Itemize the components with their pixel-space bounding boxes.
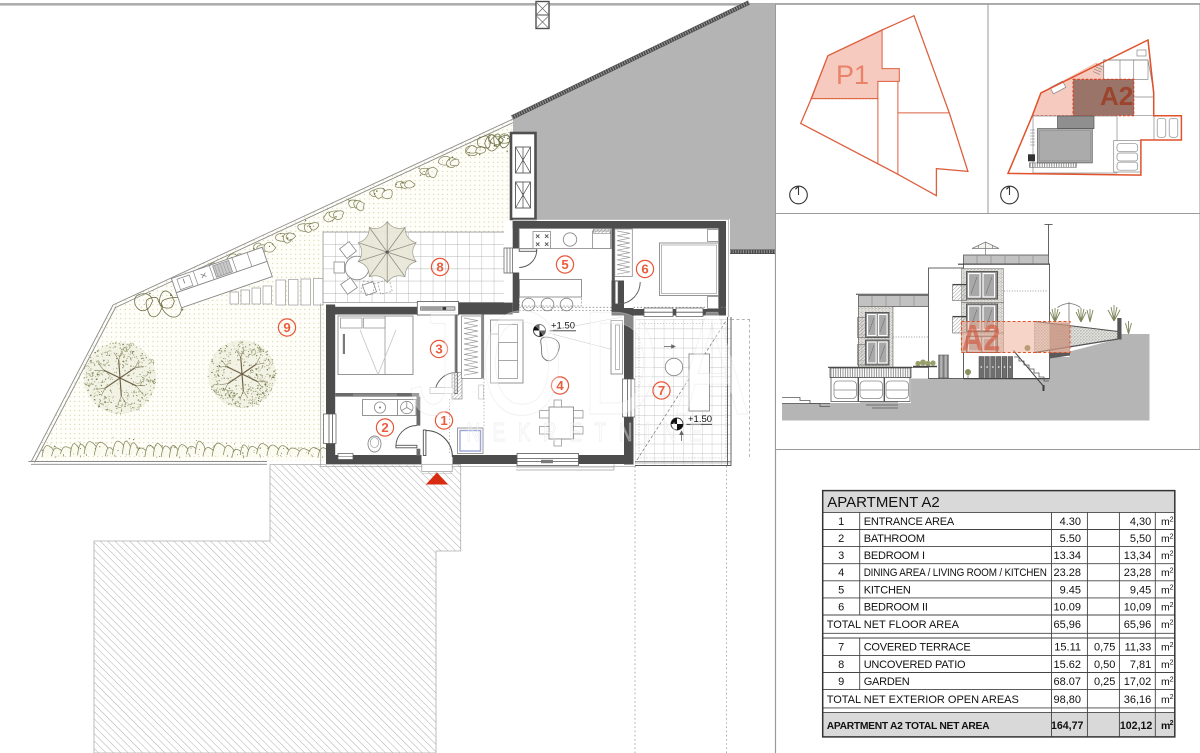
svg-text:5,50: 5,50 [1130, 533, 1151, 545]
svg-text:8: 8 [838, 659, 844, 671]
svg-text:NEKRETNINE: NEKRETNINE [466, 417, 714, 447]
svg-text:10.09: 10.09 [1053, 602, 1081, 614]
svg-text:9.45: 9.45 [1060, 584, 1081, 596]
svg-text:102,12: 102,12 [1120, 720, 1153, 732]
svg-text:23.28: 23.28 [1053, 567, 1081, 579]
svg-text:APARTMENT A2 TOTAL NET AREA: APARTMENT A2 TOTAL NET AREA [827, 721, 990, 732]
svg-text:BEDROOM II: BEDROOM II [864, 602, 928, 614]
svg-text:2: 2 [1170, 568, 1174, 575]
svg-text:15.62: 15.62 [1053, 659, 1081, 671]
svg-text:2: 2 [1170, 516, 1174, 523]
svg-text:2: 2 [838, 533, 844, 545]
svg-text:UNCOVERED PATIO: UNCOVERED PATIO [864, 659, 966, 671]
svg-text:17,02: 17,02 [1124, 676, 1152, 688]
svg-text:2: 2 [1170, 602, 1174, 609]
svg-text:3: 3 [838, 550, 844, 562]
svg-text:36,16: 36,16 [1124, 694, 1152, 706]
svg-text:65,96: 65,96 [1053, 619, 1081, 631]
svg-text:2: 2 [1170, 676, 1174, 683]
svg-text:9,45: 9,45 [1130, 584, 1151, 596]
svg-text:9: 9 [283, 320, 290, 335]
svg-text:6: 6 [641, 262, 648, 277]
svg-text:2: 2 [1170, 620, 1174, 627]
svg-text:2: 2 [1170, 694, 1174, 701]
svg-text:0,75: 0,75 [1094, 642, 1115, 654]
svg-text:APARTMENT A2: APARTMENT A2 [827, 494, 940, 511]
svg-text:13.34: 13.34 [1053, 550, 1081, 562]
svg-text:2: 2 [1170, 642, 1174, 649]
svg-text:GARDEN: GARDEN [864, 676, 910, 688]
svg-text:6: 6 [838, 602, 844, 614]
svg-text:4,30: 4,30 [1130, 516, 1151, 528]
svg-text:164,77: 164,77 [1051, 720, 1084, 732]
svg-text:P1: P1 [836, 60, 869, 90]
svg-text:0,50: 0,50 [1094, 659, 1115, 671]
svg-text:23,28: 23,28 [1124, 567, 1152, 579]
svg-text:TOTAL NET EXTERIOR OPEN AREAS: TOTAL NET EXTERIOR OPEN AREAS [827, 694, 1019, 706]
svg-text:5.50: 5.50 [1060, 533, 1081, 545]
svg-text:8: 8 [436, 260, 443, 275]
svg-text:65,96: 65,96 [1124, 619, 1152, 631]
svg-text:5: 5 [561, 257, 568, 272]
svg-text:COVERED TERRACE: COVERED TERRACE [864, 642, 971, 654]
svg-text:5: 5 [838, 584, 844, 596]
svg-text:ENTRANCE AREA: ENTRANCE AREA [864, 516, 955, 528]
svg-text:2: 2 [381, 420, 388, 435]
svg-text:1: 1 [838, 516, 844, 528]
svg-text:9: 9 [838, 676, 844, 688]
svg-text:BATHROOM: BATHROOM [864, 533, 925, 545]
svg-text:BEDROOM I: BEDROOM I [864, 550, 925, 562]
svg-text:10,09: 10,09 [1124, 602, 1152, 614]
svg-text:2: 2 [1170, 659, 1174, 666]
svg-text:0,25: 0,25 [1094, 676, 1115, 688]
svg-text:68.07: 68.07 [1053, 676, 1081, 688]
svg-text:KITCHEN: KITCHEN [864, 584, 911, 596]
svg-text:4.30: 4.30 [1060, 516, 1081, 528]
svg-text:2: 2 [1170, 551, 1174, 558]
svg-text:TOTAL NET FLOOR AREA: TOTAL NET FLOOR AREA [827, 619, 960, 631]
svg-text:A2: A2 [1100, 81, 1133, 111]
svg-text:A2: A2 [962, 318, 1001, 359]
svg-text:4: 4 [838, 567, 844, 579]
svg-text:2: 2 [1170, 585, 1174, 592]
svg-text:DINING AREA / LIVING ROOM / KI: DINING AREA / LIVING ROOM / KITCHEN [864, 567, 1047, 579]
svg-text:15.11: 15.11 [1054, 642, 1081, 654]
svg-text:2: 2 [1170, 533, 1174, 540]
svg-text:13,34: 13,34 [1124, 550, 1152, 562]
svg-text:2: 2 [1170, 720, 1174, 727]
svg-text:7: 7 [838, 642, 844, 654]
svg-text:7,81: 7,81 [1130, 659, 1151, 671]
svg-text:98,80: 98,80 [1053, 694, 1081, 706]
svg-text:11,33: 11,33 [1125, 642, 1152, 654]
